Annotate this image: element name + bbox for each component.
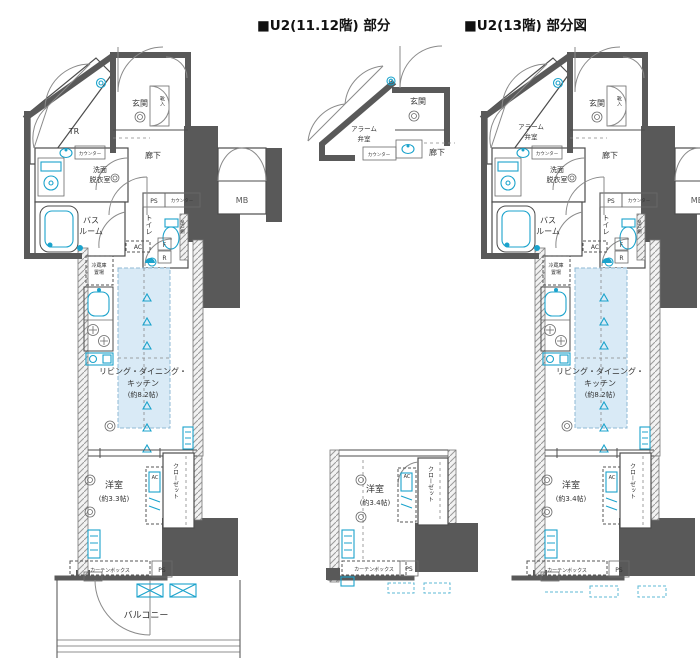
room-label-toilet: トイレ bbox=[145, 214, 153, 235]
plan-title-left: ■U2(11.12階) 部分 bbox=[257, 14, 390, 34]
ceiling-light-icon bbox=[409, 111, 419, 121]
floor-plan-left: TR 玄関 靴入 廊下 洗面 脱衣室 カウンター バス ルーム トイレ 吊戸棚 … bbox=[27, 47, 282, 658]
lower-floor-ghost bbox=[388, 583, 450, 593]
room-label-closet: クローゼット bbox=[172, 463, 179, 499]
washbasin-icon bbox=[396, 140, 422, 158]
label-ac-bed: AC bbox=[152, 475, 159, 481]
floor-plan-middle: アラーム 弁室 玄関 カウンター 廊下 洋室 (約3.4帖) クローゼット AC… bbox=[308, 46, 478, 593]
hatched-wall-right bbox=[448, 450, 456, 526]
label-tsurido: 吊戸棚 bbox=[637, 220, 642, 235]
room-label-ldk3: (約8.2帖) bbox=[128, 390, 159, 399]
balcony-door-arc bbox=[95, 580, 150, 635]
room-label-yoshitsu: 洋室 bbox=[562, 479, 580, 491]
label-curtain-box: カーテンボックス bbox=[547, 567, 587, 574]
label-ps-top: PS bbox=[607, 198, 615, 205]
label-f: F bbox=[163, 242, 167, 249]
room-label-ldk2: キッチン bbox=[127, 379, 159, 388]
room-label-bath1: バス bbox=[540, 216, 556, 225]
label-f: F bbox=[620, 242, 624, 249]
label-counter-mid: カウンター bbox=[628, 197, 651, 204]
plan-title-right: ■U2(13階) 部分図 bbox=[464, 14, 587, 34]
floorplan-sheet: TR 玄関 靴入 廊下 洗面 脱衣室 カウンター バス ルーム トイレ 吊戸棚 … bbox=[0, 0, 700, 665]
room-label-ldk1: リビング・ダイニング・ bbox=[556, 366, 644, 376]
door-leaf2 bbox=[308, 104, 345, 141]
label-curtain-box: カーテンボックス bbox=[90, 567, 130, 574]
room-label-yoshitsu-area: (約3.3帖) bbox=[99, 494, 130, 503]
label-ps: PS bbox=[405, 566, 413, 573]
label-fridge1: 冷蔵庫 bbox=[91, 262, 106, 269]
label-fridge2: 置場 bbox=[551, 269, 561, 276]
room-label-yoshitsu: 洋室 bbox=[105, 479, 123, 491]
room-label-yoshitsu: 洋室 bbox=[366, 483, 384, 495]
entry-door-arc bbox=[400, 46, 442, 88]
label-r: R bbox=[619, 255, 623, 262]
label-ps-top: PS bbox=[150, 198, 158, 205]
room-label-genkan: 玄関 bbox=[410, 96, 426, 106]
room-label-bath2: ルーム bbox=[536, 227, 560, 236]
label-mb: MB bbox=[236, 196, 248, 205]
adjacent-unit-mass bbox=[415, 523, 478, 572]
label-ac: AC bbox=[404, 474, 411, 480]
room-label-toilet: トイレ bbox=[602, 214, 610, 235]
label-ac-top: AC bbox=[591, 244, 599, 251]
label-counter-top: カウンター bbox=[536, 150, 559, 157]
label-r: R bbox=[162, 255, 166, 262]
floorplan-canvas: TR 玄関 靴入 廊下 洗面 脱衣室 カウンター バス ルーム トイレ 吊戸棚 … bbox=[0, 0, 700, 665]
room-label-ldk3: (約8.2帖) bbox=[585, 390, 616, 399]
room-label-senmen1: 洗面 bbox=[93, 165, 107, 174]
room-label-ldk1: リビング・ダイニング・ bbox=[99, 366, 187, 376]
room-label-closet: クローゼット bbox=[629, 463, 636, 499]
room-label-genkan: 玄関 bbox=[589, 98, 605, 108]
room-label-yoshitsu-area: (約3.4帖) bbox=[360, 498, 391, 507]
room-label-closet: クローゼット bbox=[427, 466, 434, 502]
room-label-kutsuire: 靴入 bbox=[159, 95, 165, 106]
label-fridge1: 冷蔵庫 bbox=[548, 262, 563, 269]
label-counter-mid: カウンター bbox=[171, 197, 194, 204]
room-label-senmen2: 脱衣室 bbox=[90, 175, 111, 184]
room-label-genkan: 玄関 bbox=[132, 98, 148, 108]
room-label-alarm1: アラーム bbox=[351, 125, 377, 133]
outdoor-unit-icon bbox=[137, 584, 196, 597]
room-label-rouka: 廊下 bbox=[602, 150, 618, 160]
room-label-alarm1: アラーム bbox=[518, 123, 544, 131]
room-label-tr: TR bbox=[68, 127, 80, 136]
media-outlet-icon bbox=[342, 530, 354, 558]
middle-top-fragment bbox=[308, 46, 455, 160]
hatched-wall-left bbox=[330, 450, 339, 582]
room-label-yoshitsu-area: (約3.4帖) bbox=[556, 494, 587, 503]
room-label-ldk2: キッチン bbox=[584, 379, 616, 388]
label-curtain-box: カーテンボックス bbox=[354, 566, 394, 573]
label-ps-bottom: PS bbox=[615, 567, 623, 574]
room-label-senmen2: 脱衣室 bbox=[547, 175, 568, 184]
room-label-alarm2: 弁室 bbox=[525, 132, 539, 141]
label-counter: カウンター bbox=[368, 151, 391, 158]
room-label-kutsuire: 靴入 bbox=[616, 95, 622, 106]
label-tsurido: 吊戸棚 bbox=[180, 220, 185, 235]
label-ps-bottom: PS bbox=[158, 567, 166, 574]
lower-floor-ghost bbox=[545, 586, 666, 597]
label-ac-top: AC bbox=[134, 244, 142, 251]
floor-plan-right: アラーム 弁室 玄関 靴入 廊下 洗面 脱衣室 カウンター バス ルーム トイレ… bbox=[484, 47, 700, 597]
middle-bottom-fragment bbox=[326, 450, 478, 593]
room-label-senmen1: 洗面 bbox=[550, 165, 564, 174]
room-label-bath2: ルーム bbox=[79, 227, 103, 236]
room-label-rouka: 廊下 bbox=[429, 147, 445, 157]
room-label-rouka: 廊下 bbox=[145, 150, 161, 160]
label-counter-top: カウンター bbox=[79, 150, 102, 157]
room-label-balcony: バルコニー bbox=[124, 610, 169, 621]
room-label-alarm2: 弁室 bbox=[358, 134, 372, 143]
label-ac-bed: AC bbox=[609, 475, 616, 481]
room-label-bath1: バス bbox=[83, 216, 99, 225]
label-mb: MB bbox=[691, 196, 700, 205]
label-fridge2: 置場 bbox=[94, 269, 104, 276]
